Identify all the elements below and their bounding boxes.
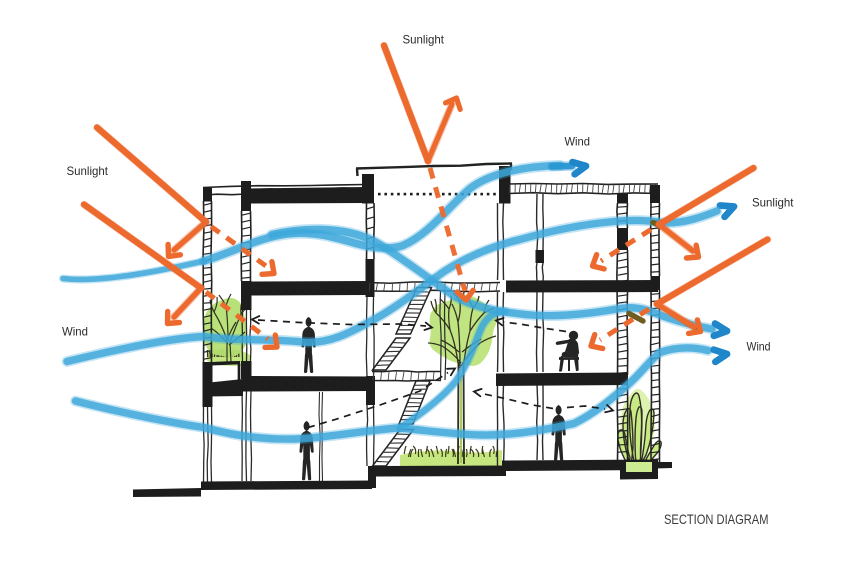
svg-text:Sunlight: Sunlight: [403, 32, 445, 46]
svg-text:Wind: Wind: [565, 135, 591, 149]
svg-text:Wind: Wind: [62, 324, 88, 338]
svg-text:Sunlight: Sunlight: [67, 164, 109, 178]
svg-text:Sunlight: Sunlight: [752, 195, 794, 209]
svg-text:SECTION DIAGRAM: SECTION DIAGRAM: [664, 511, 769, 527]
svg-text:Wind: Wind: [747, 340, 771, 354]
